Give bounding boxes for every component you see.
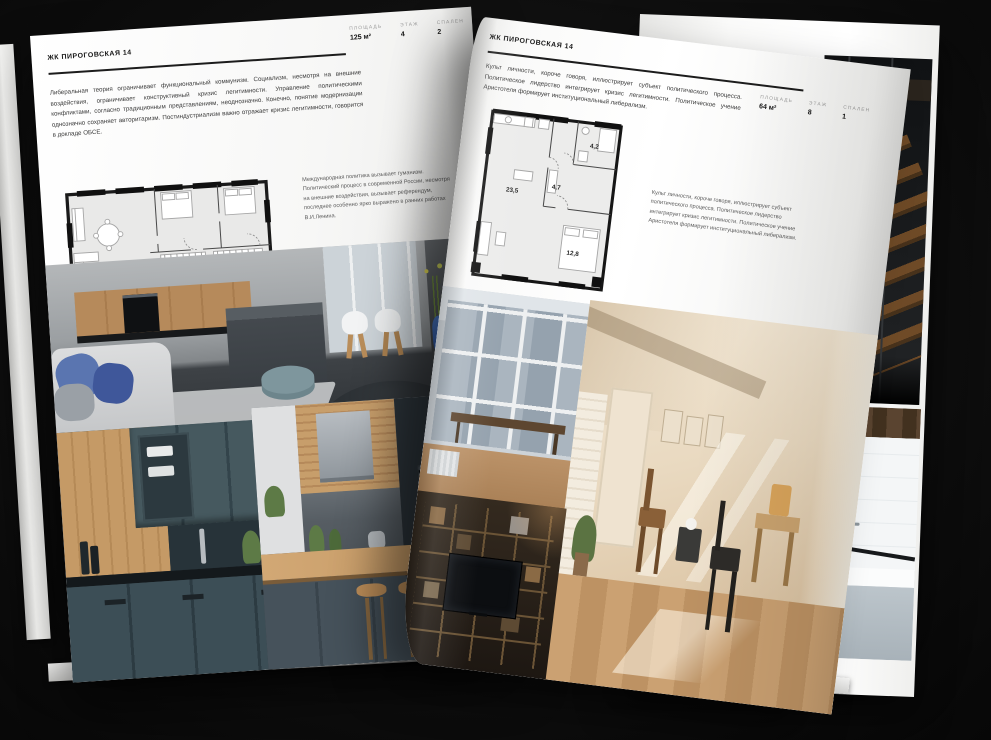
- stat-floor-value: 8: [807, 109, 826, 118]
- page-title: ЖК ПИРОГОВСКАЯ 14: [489, 34, 574, 51]
- warm-light-glow: [501, 501, 567, 560]
- dishes-shape: [147, 445, 174, 457]
- desk-lamp-shape: [768, 484, 792, 517]
- stat-area: ПЛОЩАДЬ 125 м²: [349, 25, 383, 42]
- stat-area-value: 125 м²: [350, 33, 383, 42]
- window-shape: [323, 241, 423, 352]
- room-label-bath: 4,2: [589, 143, 599, 151]
- radiator-shape: [427, 448, 460, 477]
- side-table-shape: [675, 526, 702, 563]
- stat-floor-label: ЭТАЖ: [400, 22, 419, 28]
- room-label-hall: 4,7: [551, 184, 561, 192]
- white-chair-shape: [341, 310, 369, 335]
- gray-pillow-shape: [53, 383, 95, 422]
- dark-shelving-tv-photo: [397, 490, 567, 679]
- dishes-shape: [148, 465, 175, 477]
- stat-bedrooms-value: 1: [842, 113, 870, 123]
- books-shape: [456, 533, 471, 550]
- chair-leg-shape: [382, 332, 389, 356]
- range-hood-shape: [316, 411, 375, 483]
- stat-floor: ЭТАЖ 4: [400, 22, 420, 38]
- right-page: ЖК ПИРОГОВСКАЯ 14 Культ личности, короче…: [397, 16, 911, 715]
- books-shape: [524, 566, 541, 583]
- white-chair-shape: [374, 308, 402, 333]
- oven-shape: [122, 293, 160, 333]
- flower-shape: [437, 263, 442, 268]
- plant-pot-shape: [573, 552, 590, 577]
- books-shape: [423, 581, 440, 598]
- chair-leg-shape: [347, 334, 354, 358]
- tv-screen-shape: [442, 553, 522, 619]
- plan-caption: Культ личности, короче говоря, иллюстрир…: [648, 189, 803, 245]
- stat-area-label: ПЛОЩАДЬ: [349, 25, 382, 32]
- navy-pillow-shape: [91, 361, 135, 405]
- stat-bedrooms: СПАЛЕН 1: [842, 105, 871, 123]
- stat-area: ПЛОЩАДЬ 64 м²: [759, 95, 794, 114]
- stat-floor-value: 4: [401, 30, 420, 38]
- sunlit-attic-room-photo: [544, 300, 878, 714]
- page-title: ЖК ПИРОГОВСКАЯ 14: [47, 49, 132, 62]
- stats-block: ПЛОЩАДЬ 64 м² ЭТАЖ 8 СПАЛЕН 1: [759, 95, 871, 123]
- stat-area-value: 64 м²: [759, 103, 793, 114]
- stat-floor-label: ЭТАЖ: [808, 101, 827, 108]
- floor-plan-64m2: 23,5 4,7 4,2 12,8: [460, 99, 635, 299]
- stat-bedrooms-label: СПАЛЕН: [843, 105, 871, 113]
- plan-caption: Международная политика вызывает гуманизм…: [302, 166, 459, 223]
- stat-floor: ЭТАЖ 8: [807, 101, 827, 118]
- books-shape: [429, 506, 446, 525]
- magazine-mockup-scene: ЖК ПИРОГОВСКАЯ 14 ПЛОЩАДЬ 125 м² ЭТАЖ 4 …: [0, 0, 991, 740]
- body-paragraph: Либеральная теория ограничивает функцион…: [50, 68, 365, 142]
